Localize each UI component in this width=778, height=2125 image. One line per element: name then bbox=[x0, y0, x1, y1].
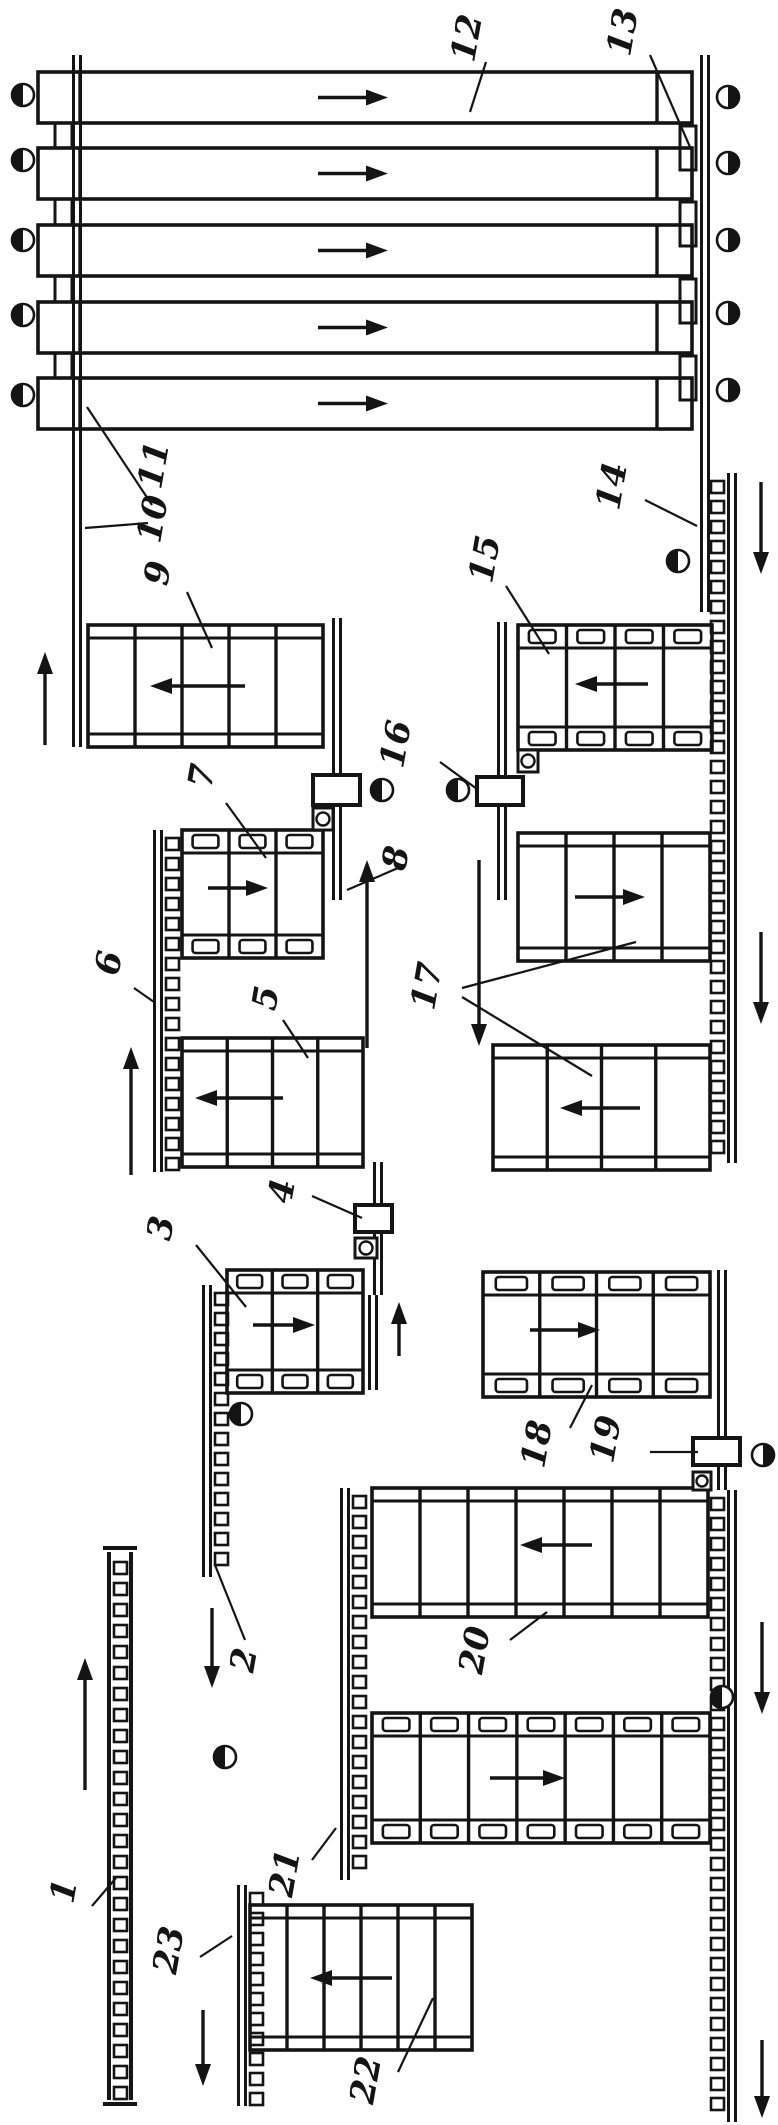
conveyor-7 bbox=[182, 830, 323, 958]
position-number: 14 bbox=[588, 459, 636, 513]
chain-2 bbox=[204, 1285, 229, 1577]
position-label-21: 21 bbox=[261, 1828, 336, 1901]
flow-up bbox=[77, 1658, 93, 1790]
position-label-4: 4 bbox=[260, 1176, 362, 1218]
flow-down bbox=[753, 482, 769, 574]
position-label-5: 5 bbox=[244, 983, 308, 1058]
flow-down bbox=[471, 860, 487, 1046]
bearing-block bbox=[313, 808, 333, 830]
flow-up bbox=[391, 1302, 407, 1356]
position-label-20: 20 bbox=[451, 1612, 547, 1678]
conveyor-17-upper bbox=[518, 833, 710, 961]
position-number: 4 bbox=[260, 1176, 304, 1206]
conveyor-17-lower bbox=[493, 1045, 710, 1170]
bearing-block bbox=[518, 750, 538, 772]
flow-down bbox=[754, 1622, 770, 1714]
flow-down bbox=[204, 1608, 220, 1688]
bearing-block bbox=[355, 1238, 377, 1258]
drive-marker bbox=[717, 152, 739, 174]
position-number: 3 bbox=[139, 1213, 183, 1243]
position-number: 15 bbox=[461, 532, 509, 586]
position-label-12: 12 bbox=[443, 11, 491, 112]
flow-up bbox=[123, 1047, 139, 1175]
flow-up bbox=[359, 860, 375, 1048]
position-number: 6 bbox=[87, 948, 131, 978]
bearing-block bbox=[693, 1472, 711, 1490]
position-label-19: 19 bbox=[582, 1412, 698, 1466]
position-number: 12 bbox=[443, 11, 491, 65]
drive-marker bbox=[214, 1746, 236, 1768]
position-number: 19 bbox=[582, 1412, 630, 1466]
position-number: 18 bbox=[513, 1417, 561, 1471]
chain-1 bbox=[103, 1548, 137, 2104]
position-number: 23 bbox=[145, 1923, 193, 1978]
drive-marker bbox=[711, 1686, 733, 1708]
chain-right-lower bbox=[711, 1490, 736, 2122]
position-number: 7 bbox=[180, 761, 224, 792]
machine-box-16 bbox=[477, 777, 523, 805]
position-label-13: 13 bbox=[599, 5, 690, 147]
drive-marker bbox=[447, 779, 469, 801]
drive-marker bbox=[752, 1444, 774, 1466]
drive-marker bbox=[371, 779, 393, 801]
conveyor-18 bbox=[483, 1272, 710, 1397]
position-label-8: 8 bbox=[347, 843, 418, 890]
flow-down bbox=[195, 2010, 211, 2086]
drive-marker bbox=[717, 379, 739, 401]
position-number: 2 bbox=[222, 1645, 266, 1676]
position-number: 16 bbox=[372, 717, 420, 771]
position-label-6: 6 bbox=[87, 948, 154, 1002]
drive-marker bbox=[12, 84, 34, 106]
drive-marker bbox=[230, 1403, 252, 1425]
conveyor-5 bbox=[182, 1038, 363, 1167]
drive-marker bbox=[12, 149, 34, 171]
position-number: 20 bbox=[451, 1623, 499, 1678]
position-label-9: 9 bbox=[136, 558, 212, 648]
rail-16 bbox=[499, 622, 506, 900]
conveyor-20 bbox=[372, 1488, 708, 1617]
position-number: 5 bbox=[244, 983, 288, 1013]
sorter-deck-12 bbox=[38, 72, 696, 429]
layout-diagram-canvas: 1234567891011121314151617181920212223 bbox=[0, 0, 778, 2125]
position-number: 9 bbox=[136, 558, 180, 588]
drive-marker bbox=[717, 229, 739, 251]
conveyor-3 bbox=[227, 1270, 363, 1393]
position-number: 8 bbox=[374, 843, 418, 874]
position-label-23: 23 bbox=[145, 1923, 232, 1978]
position-label-14: 14 bbox=[588, 459, 697, 526]
diagram-page: 1234567891011121314151617181920212223 bbox=[0, 0, 778, 2125]
machine-box-19 bbox=[693, 1438, 740, 1465]
rail-3-right bbox=[370, 1295, 377, 1390]
machine-box-8 bbox=[313, 775, 360, 805]
position-label-22: 22 bbox=[342, 1998, 433, 2108]
chain-right-upper-14 bbox=[711, 473, 736, 1163]
chain-center bbox=[342, 1488, 367, 1880]
position-number: 1 bbox=[42, 1876, 86, 1906]
rail-8 bbox=[334, 618, 341, 900]
position-number: 13 bbox=[599, 5, 647, 59]
drive-marker bbox=[12, 229, 34, 251]
position-label-2: 2 bbox=[215, 1565, 266, 1676]
position-number: 10 bbox=[129, 492, 177, 546]
conveyor-22 bbox=[250, 1905, 472, 2050]
position-number: 17 bbox=[403, 959, 451, 1013]
position-label-11: 11 bbox=[87, 407, 178, 505]
drive-marker bbox=[667, 550, 689, 572]
flow-down bbox=[754, 2040, 770, 2118]
drive-marker bbox=[12, 384, 34, 406]
flow-down bbox=[753, 932, 769, 1024]
drive-marker bbox=[12, 304, 34, 326]
drive-marker bbox=[717, 86, 739, 108]
rail-13-14 bbox=[702, 55, 709, 612]
conveyor-9 bbox=[88, 625, 323, 747]
conveyor-21 bbox=[372, 1713, 710, 1843]
conveyor-15 bbox=[518, 625, 712, 750]
position-number: 21 bbox=[261, 1846, 309, 1901]
chain-6 bbox=[155, 830, 180, 1172]
position-number: 11 bbox=[130, 438, 178, 492]
position-label-10: 10 bbox=[85, 492, 177, 546]
drive-marker bbox=[717, 302, 739, 324]
position-label-1: 1 bbox=[42, 1876, 116, 1906]
position-label-16: 16 bbox=[372, 717, 477, 789]
flow-up bbox=[37, 652, 53, 745]
position-number: 22 bbox=[342, 2053, 390, 2108]
